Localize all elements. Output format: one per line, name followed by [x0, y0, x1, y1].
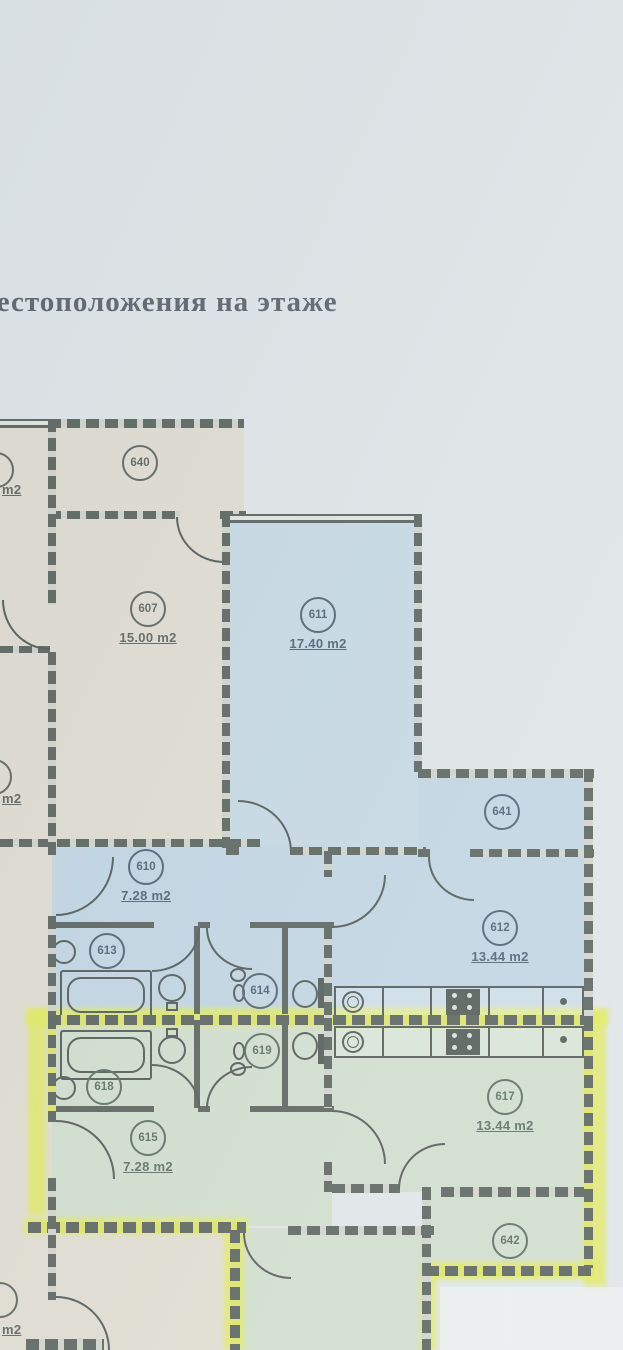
room-number-circle: 642	[492, 1223, 528, 1259]
window	[226, 514, 420, 523]
room-number-circle: 640	[122, 445, 158, 481]
page-title: местоположения на этаже	[0, 286, 338, 319]
room-area-label: 17.40 m2	[289, 636, 346, 651]
room-area-label: 7.28 m2	[121, 888, 171, 903]
room-label-611: 611 17.40 m2	[268, 597, 368, 651]
wall	[250, 1106, 334, 1112]
counter-dot	[560, 998, 567, 1005]
wall	[48, 511, 180, 519]
sink-base	[166, 1028, 178, 1037]
wall	[48, 419, 56, 605]
stove-icon	[446, 989, 480, 1015]
burner	[452, 1045, 457, 1050]
pedestal-sink-icon	[158, 974, 186, 1002]
room-label-642: 642	[460, 1223, 560, 1259]
room-number-circle: 611	[300, 597, 336, 633]
room-area-label: 7.28 m2	[123, 1159, 173, 1174]
room-607	[48, 515, 244, 845]
room-number-circle: 617	[487, 1079, 523, 1115]
wall	[324, 851, 332, 877]
bathtub-icon	[60, 970, 152, 1020]
room-label-612: 612 13.44 m2	[450, 910, 550, 964]
wall	[584, 769, 593, 1018]
scanned-floor-plan-page: местоположения на этаже	[0, 0, 623, 1350]
room-label-617: 617 13.44 m2	[455, 1079, 555, 1133]
wall	[48, 922, 154, 928]
window	[0, 419, 50, 428]
outside-white-area	[440, 1287, 623, 1350]
counter-dot	[560, 1036, 567, 1043]
room-number-circle: 619	[244, 1033, 280, 1069]
burner	[467, 993, 472, 998]
wall	[250, 922, 334, 928]
room-number-circle: 641	[484, 794, 520, 830]
room-number-circle: 618	[86, 1069, 122, 1105]
burner	[452, 1033, 457, 1038]
wall-apartment-divider	[48, 1015, 594, 1025]
burner	[452, 1005, 457, 1010]
counter-divider	[542, 1028, 544, 1056]
room-number-circle: 612	[482, 910, 518, 946]
wall	[324, 926, 332, 1018]
wall	[324, 1162, 332, 1192]
wall	[48, 1178, 56, 1300]
counter-divider	[488, 988, 490, 1016]
wall	[48, 916, 56, 1016]
counter-divider	[542, 988, 544, 1016]
room-number-circle: 615	[130, 1120, 166, 1156]
room-area-label-partial: m2	[2, 1322, 21, 1337]
wall	[288, 1226, 434, 1235]
wall	[418, 849, 430, 857]
room-area-label-partial: m2	[2, 791, 21, 806]
kitchen-sink-icon	[342, 991, 364, 1013]
room-label-613: 613	[57, 933, 157, 969]
apartment-highlight	[28, 1010, 46, 1215]
room-number-circle: 607	[130, 591, 166, 627]
room-area-label-partial: m2	[2, 482, 21, 497]
kitchen-sink-icon	[342, 1031, 364, 1053]
burner	[467, 1033, 472, 1038]
wall	[418, 769, 594, 778]
wall	[470, 849, 594, 857]
room-label-640: 640	[90, 445, 190, 481]
sink-base	[166, 1002, 178, 1011]
burner	[467, 1005, 472, 1010]
counter-divider	[382, 1028, 384, 1056]
wall	[426, 1266, 594, 1276]
room-area-label: 15.00 m2	[119, 630, 176, 645]
counter-divider	[382, 988, 384, 1016]
room-area-label: 13.44 m2	[471, 949, 528, 964]
counter-divider	[488, 1028, 490, 1056]
room-label-619: 619	[212, 1033, 312, 1069]
wall	[414, 514, 422, 772]
room-number-circle: 614	[242, 973, 278, 1009]
wall	[441, 1187, 593, 1197]
wall	[48, 652, 56, 855]
wall	[230, 1230, 240, 1350]
wall	[290, 847, 426, 855]
wall	[422, 1187, 431, 1350]
wall	[0, 839, 260, 847]
room-label-607: 607 15.00 m2	[98, 591, 198, 645]
wall	[48, 419, 244, 428]
wall	[332, 1184, 400, 1193]
burner	[467, 1045, 472, 1050]
wall	[48, 1106, 154, 1112]
room-label-618: 618	[54, 1069, 154, 1105]
counter-divider	[430, 988, 432, 1016]
wall	[28, 1222, 246, 1233]
room-label-615: 615 7.28 m2	[98, 1120, 198, 1174]
wall	[222, 514, 230, 848]
room-label-641: 641	[452, 794, 552, 830]
wall	[48, 1344, 56, 1350]
burner	[452, 993, 457, 998]
room-area-label: 13.44 m2	[476, 1118, 533, 1133]
stove-icon	[446, 1029, 480, 1055]
wall	[324, 1018, 332, 1108]
pedestal-sink-icon	[158, 1036, 186, 1064]
room-label-610: 610 7.28 m2	[96, 849, 196, 903]
counter-divider	[430, 1028, 432, 1056]
room-label-614: 614	[210, 973, 310, 1009]
room-number-circle: 610	[128, 849, 164, 885]
room-number-circle: 613	[89, 933, 125, 969]
wall	[584, 1018, 593, 1268]
